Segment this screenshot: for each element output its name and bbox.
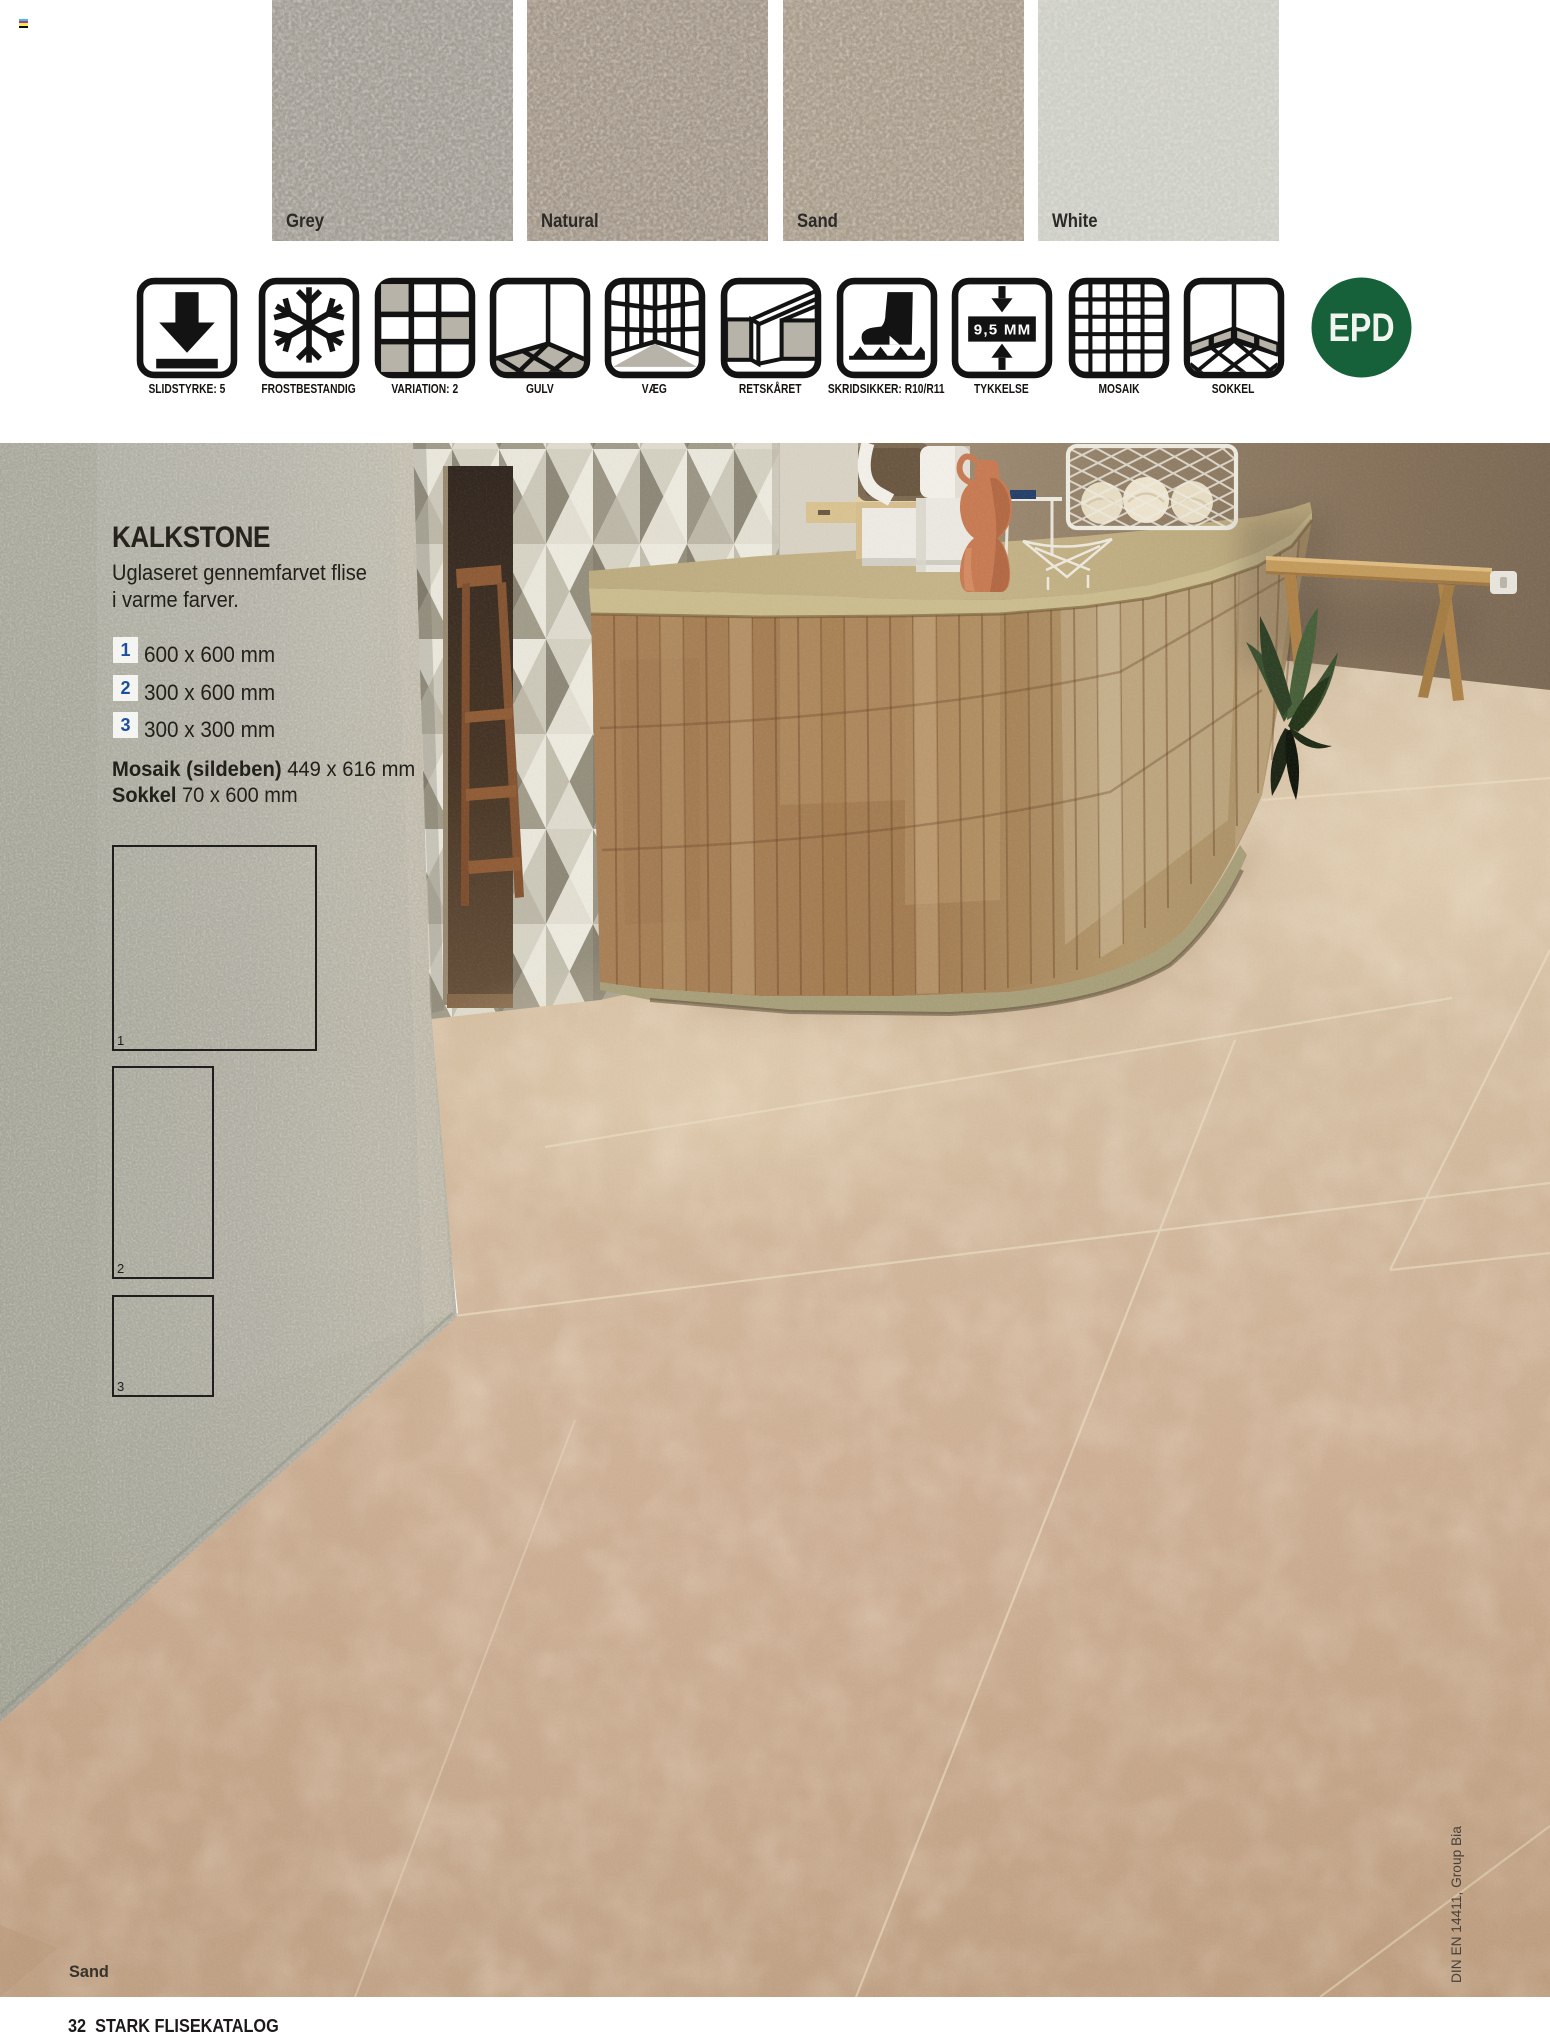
svg-text:EPD: EPD bbox=[1329, 306, 1395, 350]
